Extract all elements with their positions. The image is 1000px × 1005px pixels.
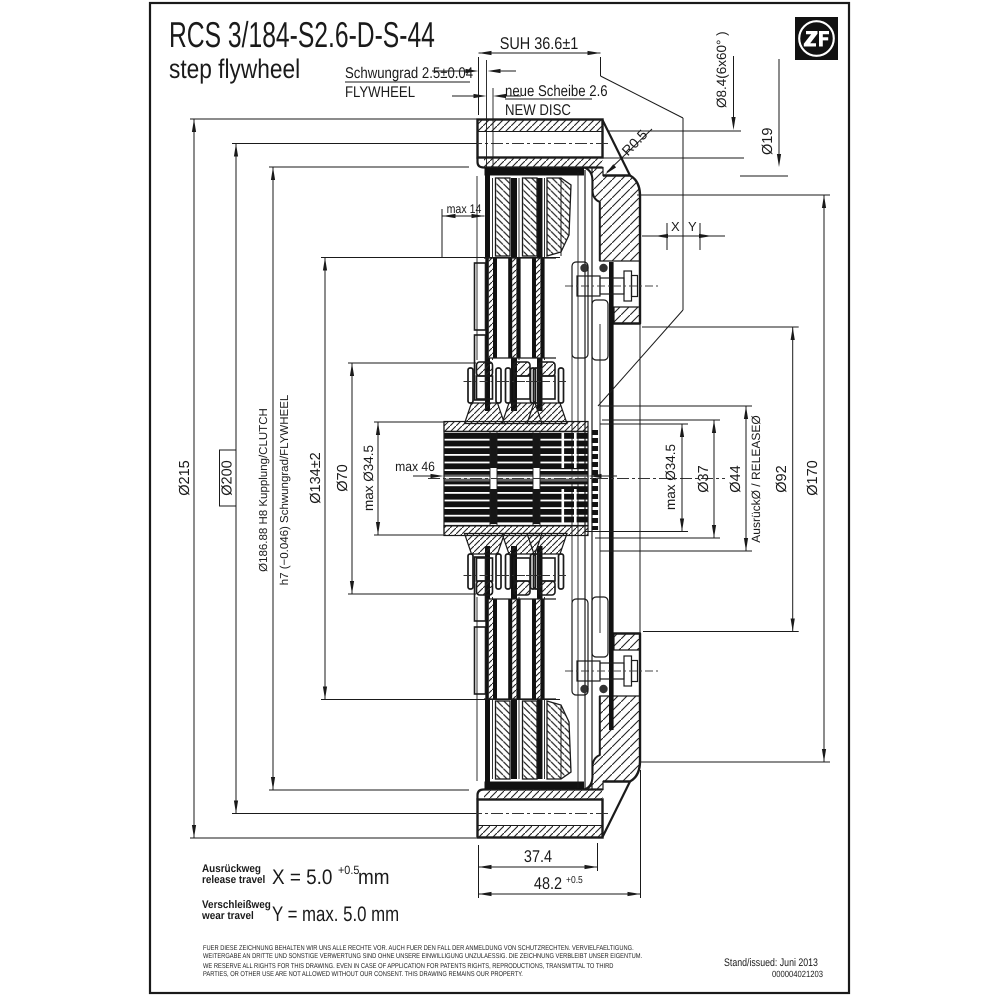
svg-text:max Ø34.5: max Ø34.5 (663, 444, 678, 510)
svg-text:FUER DIESE ZEICHNUNG BEHALTEN: FUER DIESE ZEICHNUNG BEHALTEN WIR UNS AL… (203, 945, 634, 952)
svg-text:step flywheel: step flywheel (169, 54, 300, 84)
svg-text:WEITERGABE AN DRITTE UND SONST: WEITERGABE AN DRITTE UND SONSTIGE VERWER… (203, 953, 642, 960)
svg-text:Ø8.4(6x60° ): Ø8.4(6x60° ) (714, 31, 729, 108)
svg-text:Y: Y (688, 219, 697, 234)
svg-text:Stand/issued: Juni 2013: Stand/issued: Juni 2013 (724, 957, 818, 969)
svg-text:Ø134±2: Ø134±2 (308, 452, 324, 504)
svg-text:Ø44: Ø44 (728, 465, 744, 492)
svg-text:000004021203: 000004021203 (772, 969, 823, 979)
svg-text:Schwungrad 2.5±0.04: Schwungrad 2.5±0.04 (345, 65, 473, 82)
svg-text:48.2: 48.2 (534, 874, 562, 893)
svg-text:Ø92: Ø92 (774, 465, 790, 492)
svg-text:37.4: 37.4 (524, 847, 552, 866)
svg-text:Ø19: Ø19 (760, 128, 776, 155)
svg-text:mm: mm (358, 866, 390, 889)
svg-text:Ø37: Ø37 (696, 465, 712, 492)
svg-text:WE RESERVE ALL RIGHTS FOR THIS: WE RESERVE ALL RIGHTS FOR THIS DRAWING. … (203, 963, 613, 970)
svg-text:Ø70: Ø70 (335, 464, 351, 491)
svg-text:+0.5: +0.5 (338, 863, 360, 877)
svg-text:Ø215: Ø215 (177, 460, 193, 495)
svg-text:FLYWHEEL: FLYWHEEL (345, 84, 415, 101)
svg-text:RCS 3/184-S2.6-D-S-44: RCS 3/184-S2.6-D-S-44 (169, 14, 435, 55)
svg-text:SUH 36.6±1: SUH 36.6±1 (500, 34, 579, 53)
svg-text:Y = max. 5.0 mm: Y = max. 5.0 mm (272, 903, 399, 926)
svg-text:neue Scheibe 2.6: neue Scheibe 2.6 (505, 83, 608, 100)
svg-text:X: X (671, 219, 680, 234)
svg-text:Ø200: Ø200 (220, 460, 236, 495)
svg-text:X = 5.0: X = 5.0 (272, 866, 332, 889)
svg-text:+0.5: +0.5 (566, 875, 583, 886)
svg-text:Ø186.88 H8 Kupplung/CLUTCH: Ø186.88 H8 Kupplung/CLUTCH (258, 408, 270, 572)
svg-text:h7 (−0.046) Schwungrad/FLYWHEE: h7 (−0.046) Schwungrad/FLYWHEEL (279, 394, 291, 585)
svg-text:AusrückØ / RELEASEØ: AusrückØ / RELEASEØ (749, 415, 763, 542)
svg-text:PARTIES, OR OTHER USE ARE NOT: PARTIES, OR OTHER USE ARE NOT ALLOWED WI… (203, 971, 523, 978)
svg-text:NEW DISC: NEW DISC (505, 102, 571, 119)
svg-text:max Ø34.5: max Ø34.5 (361, 445, 376, 511)
svg-text:Ø170: Ø170 (805, 460, 821, 495)
svg-text:release travel: release travel (202, 874, 265, 886)
svg-text:max 46: max 46 (395, 459, 435, 474)
svg-text:wear travel: wear travel (201, 910, 254, 922)
svg-text:max 14: max 14 (447, 202, 482, 216)
